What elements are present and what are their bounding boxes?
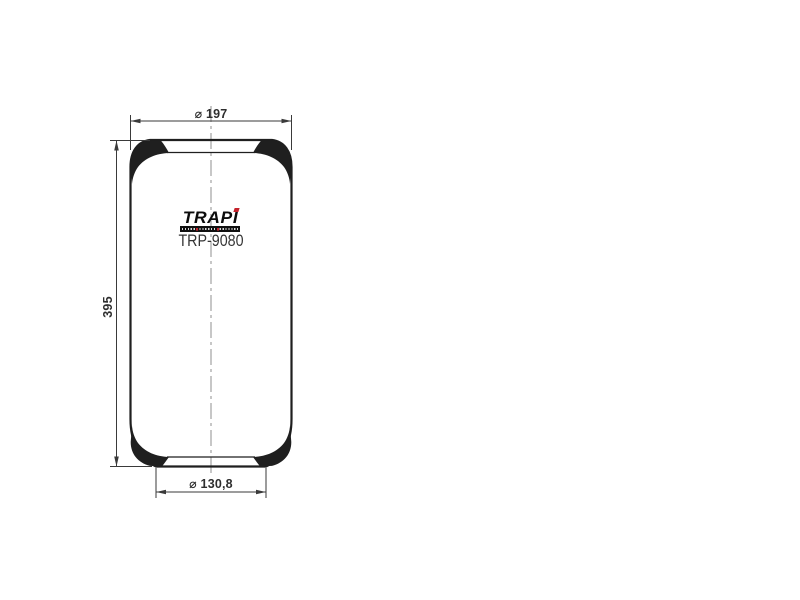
arrowhead-left bbox=[131, 119, 141, 124]
dimension-label-height: 395 bbox=[101, 296, 115, 317]
drawing-canvas: ⌀ 197 395 ⌀ 130,8 TRAPI TRP-9080 bbox=[0, 0, 800, 600]
part-number: TRP-9080 bbox=[178, 231, 244, 251]
arrowhead-bottom bbox=[114, 457, 119, 467]
brand-logo: TRAPI bbox=[179, 209, 242, 233]
arrowhead-right bbox=[282, 119, 292, 124]
dimension-label-top-diameter: ⌀ 197 bbox=[151, 106, 271, 121]
corner-bead-bottom-right bbox=[253, 426, 291, 466]
arrowhead-top bbox=[114, 141, 119, 151]
corner-bead-bottom-left bbox=[131, 426, 169, 466]
dimension-label-bottom-diameter: ⌀ 130,8 bbox=[151, 476, 271, 491]
air-spring-technical-drawing bbox=[0, 0, 800, 600]
